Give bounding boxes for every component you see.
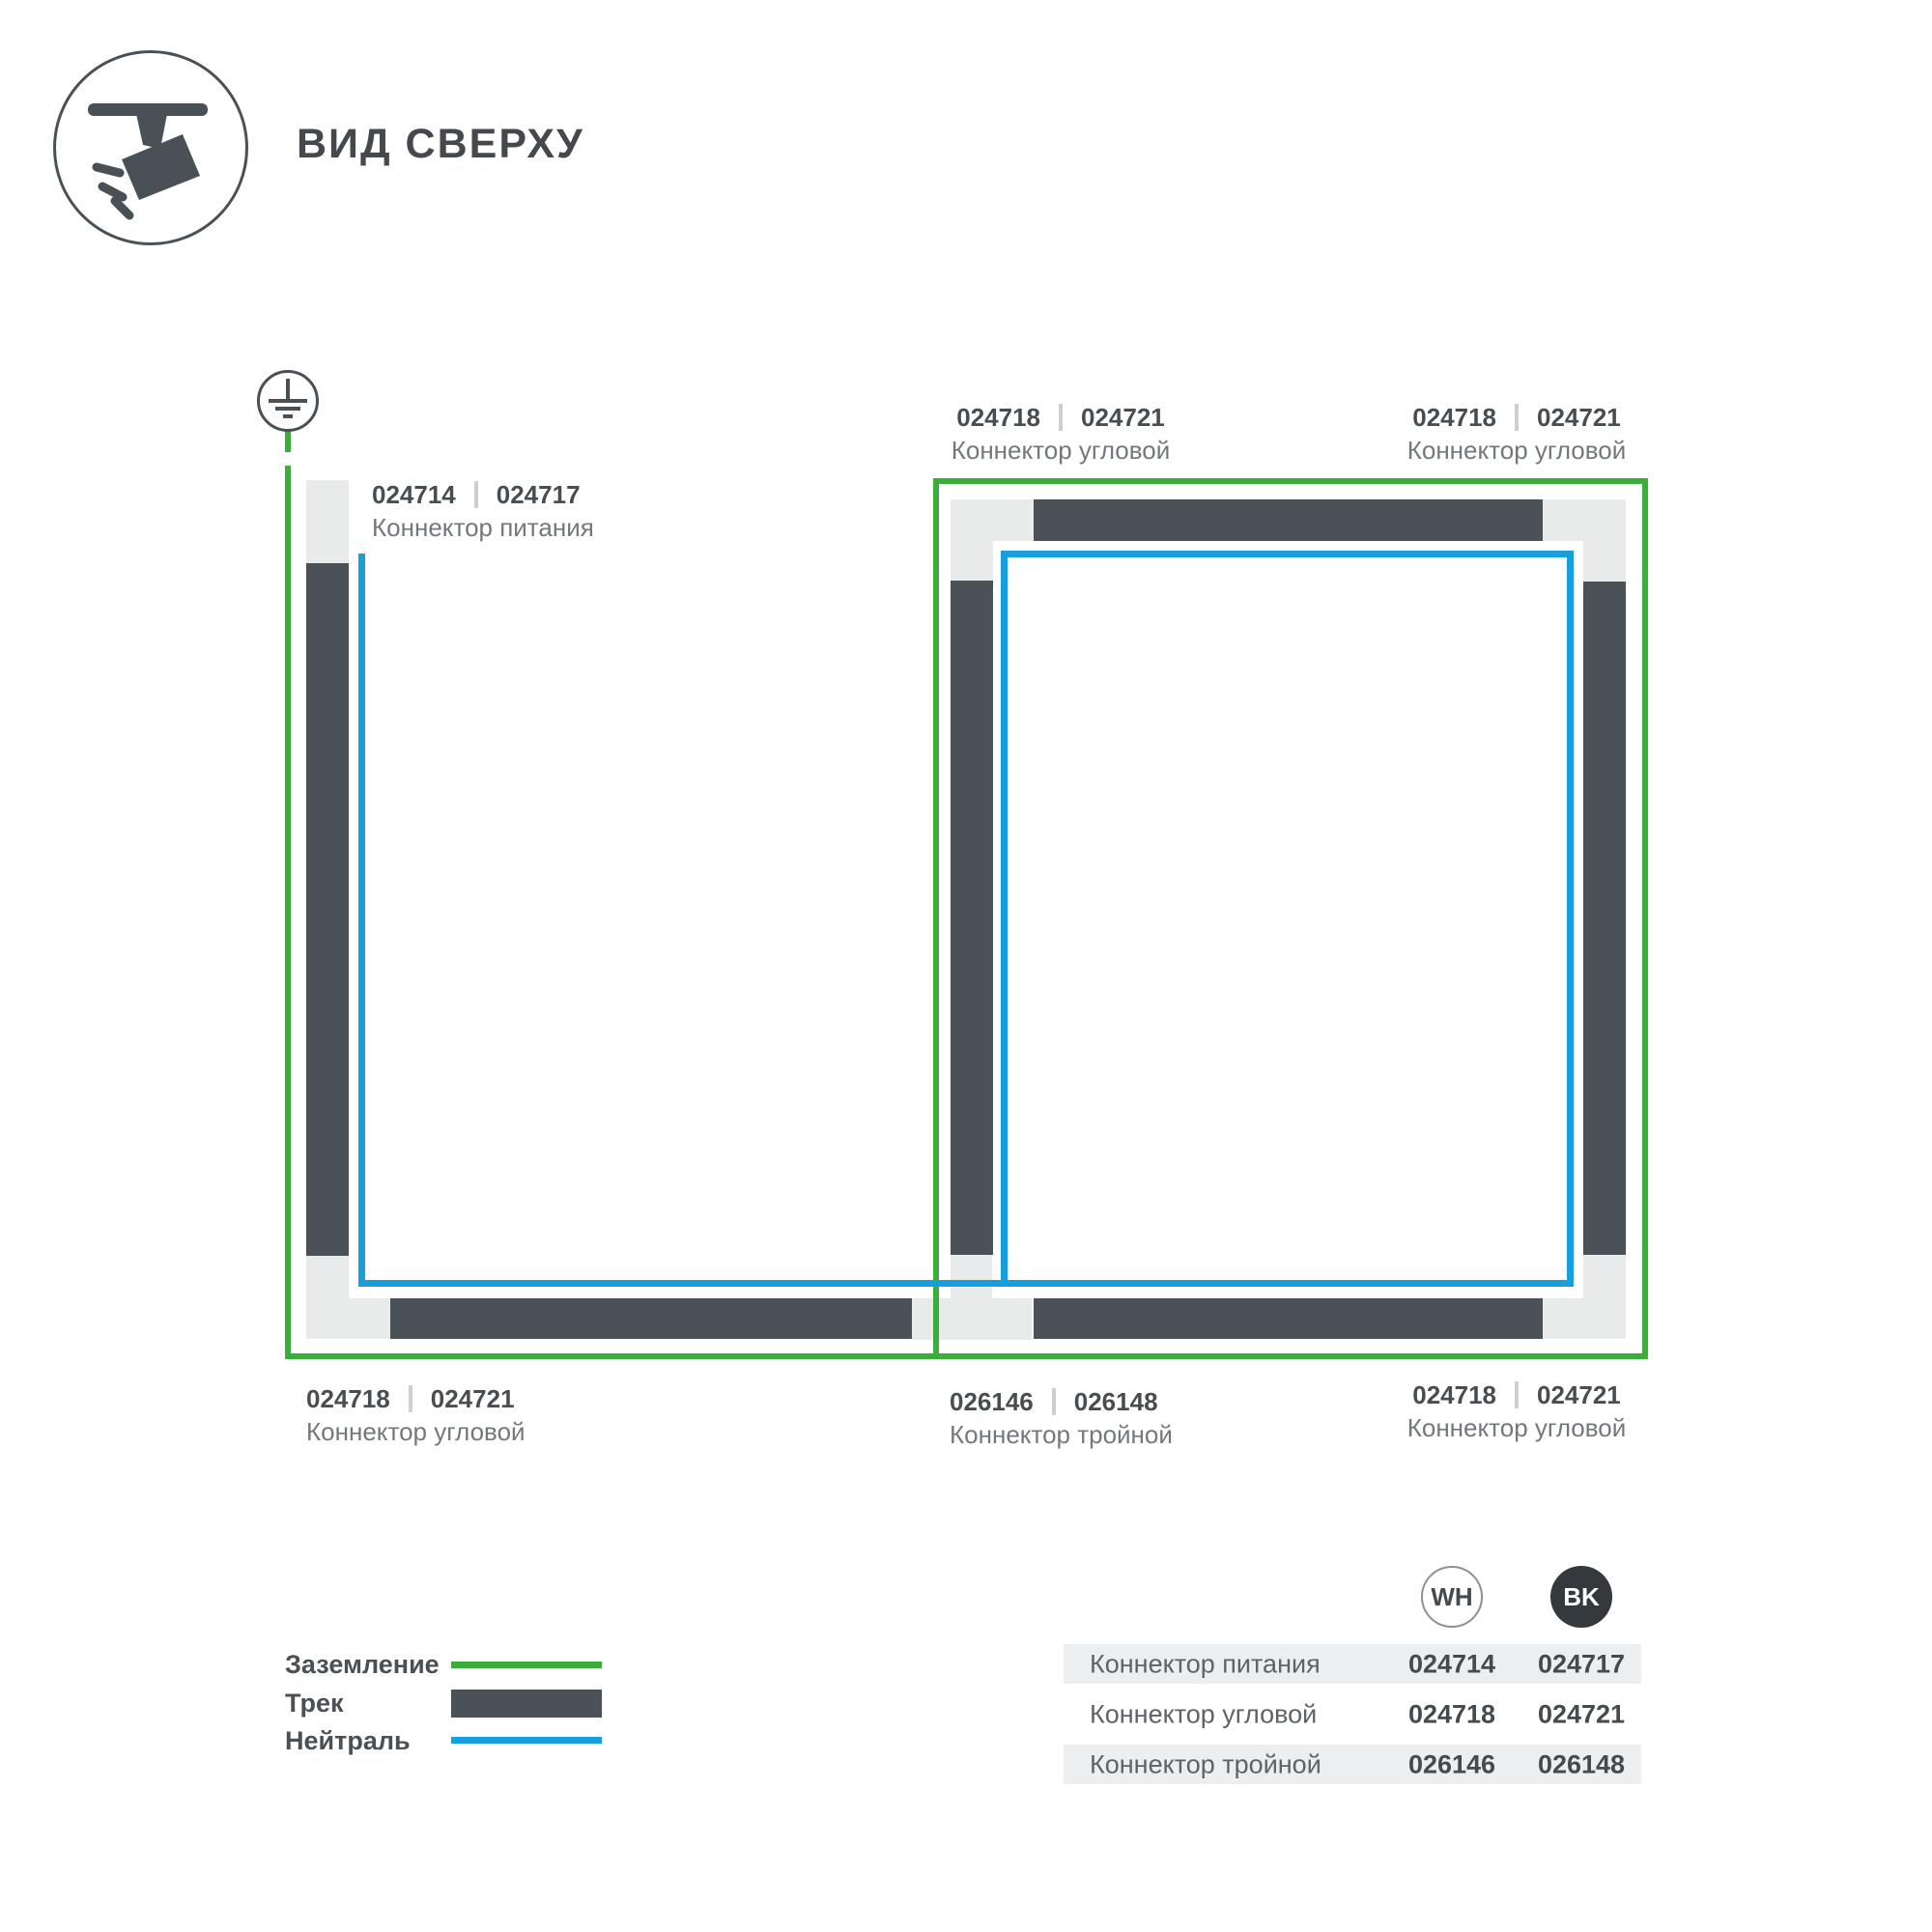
- label-corner-top-right: 024718 024721 Коннектор угловой: [1406, 403, 1628, 465]
- code-separator: [409, 1385, 412, 1412]
- code-bk: 026148: [1074, 1387, 1158, 1416]
- neutral-wire-left-h: [358, 1280, 1009, 1287]
- legend-label-track: Трек: [285, 1689, 344, 1718]
- code-separator: [474, 481, 478, 508]
- table-row-wh-code: 026146: [1384, 1749, 1520, 1779]
- column-badge-wh: WH: [1421, 1566, 1483, 1628]
- table-row: Коннектор угловой 024718 024721: [1064, 1694, 1641, 1734]
- table-row-bk-code: 024717: [1514, 1649, 1649, 1679]
- part-codes: 024718 024721: [950, 403, 1172, 432]
- code-bk: 024717: [497, 480, 581, 509]
- column-code-wh: WH: [1431, 1582, 1472, 1612]
- ground-wire-dashed: [285, 431, 291, 481]
- part-caption: Коннектор угловой: [1406, 436, 1628, 465]
- part-caption: Коннектор тройной: [950, 1420, 1173, 1449]
- label-corner-top-left: 024718 024721 Коннектор угловой: [950, 403, 1172, 465]
- table-row-label: Коннектор угловой: [1090, 1699, 1317, 1729]
- code-separator: [1515, 1381, 1519, 1408]
- table-row-bk-code: 024721: [1514, 1699, 1649, 1729]
- code-bk: 024721: [1081, 403, 1165, 432]
- table-row: Коннектор тройной 026146 026148: [1064, 1745, 1641, 1784]
- code-separator: [1052, 1388, 1056, 1415]
- table-row: Коннектор питания 024714 024717: [1064, 1644, 1641, 1684]
- code-bk: 024721: [1537, 1380, 1621, 1409]
- track-spotlight-icon: [56, 53, 240, 237]
- part-codes: 024714 024717: [372, 480, 594, 509]
- label-triple-connector: 026146 026148 Коннектор тройной: [950, 1387, 1173, 1449]
- legend-swatch-neutral-line: [451, 1737, 602, 1744]
- table-row-label: Коннектор питания: [1090, 1649, 1321, 1679]
- corner-connector-bottom-left-h: [306, 1298, 390, 1339]
- label-corner-bottom-left: 024718 024721 Коннектор угловой: [306, 1384, 526, 1446]
- column-code-bk: BK: [1563, 1582, 1600, 1612]
- table-row-wh-code: 024718: [1384, 1699, 1520, 1729]
- table-row-label: Коннектор тройной: [1090, 1749, 1321, 1779]
- part-codes: 026146 026148: [950, 1387, 1173, 1416]
- header-icon-circle: [53, 50, 248, 245]
- part-codes: 024718 024721: [1406, 403, 1628, 432]
- part-caption: Коннектор питания: [372, 513, 594, 542]
- neutral-wire-left-v: [358, 554, 365, 1287]
- earth-ground-glyph: [260, 373, 316, 429]
- code-wh: 026146: [950, 1387, 1034, 1416]
- track-bottom-outer: [390, 1298, 912, 1339]
- code-wh: 024714: [372, 480, 456, 509]
- code-separator: [1515, 404, 1519, 431]
- code-wh: 024718: [1412, 1380, 1496, 1409]
- legend-swatch-track-bar: [451, 1690, 602, 1718]
- legend-swatch-ground-line: [451, 1662, 602, 1668]
- code-bk: 024721: [431, 1384, 515, 1413]
- label-corner-bottom-right: 024718 024721 Коннектор угловой: [1406, 1380, 1628, 1442]
- ground-wire-left: [285, 480, 291, 1359]
- table-row-wh-code: 024714: [1384, 1649, 1520, 1679]
- column-badge-bk: BK: [1550, 1566, 1612, 1628]
- ground-symbol-icon: [257, 370, 319, 432]
- part-caption: Коннектор угловой: [306, 1417, 526, 1446]
- part-codes: 024718 024721: [1406, 1380, 1628, 1409]
- code-wh: 024718: [306, 1384, 390, 1413]
- part-caption: Коннектор угловой: [1406, 1413, 1628, 1442]
- power-connector: [306, 480, 349, 563]
- part-caption: Коннектор угловой: [950, 436, 1172, 465]
- code-bk: 024721: [1537, 403, 1621, 432]
- table-row-bk-code: 026148: [1514, 1749, 1649, 1779]
- track-left-outer: [306, 563, 349, 1256]
- neutral-wire-right-loop: [1001, 551, 1574, 1287]
- code-separator: [1059, 404, 1063, 431]
- part-codes: 024718 024721: [306, 1384, 526, 1413]
- legend-label-neutral: Нейтраль: [285, 1726, 411, 1755]
- page-title: ВИД СВЕРХУ: [297, 124, 584, 165]
- legend-label-ground: Заземление: [285, 1650, 440, 1679]
- label-power-connector: 024714 024717 Коннектор питания: [372, 480, 594, 542]
- code-wh: 024718: [956, 403, 1040, 432]
- code-wh: 024718: [1412, 403, 1496, 432]
